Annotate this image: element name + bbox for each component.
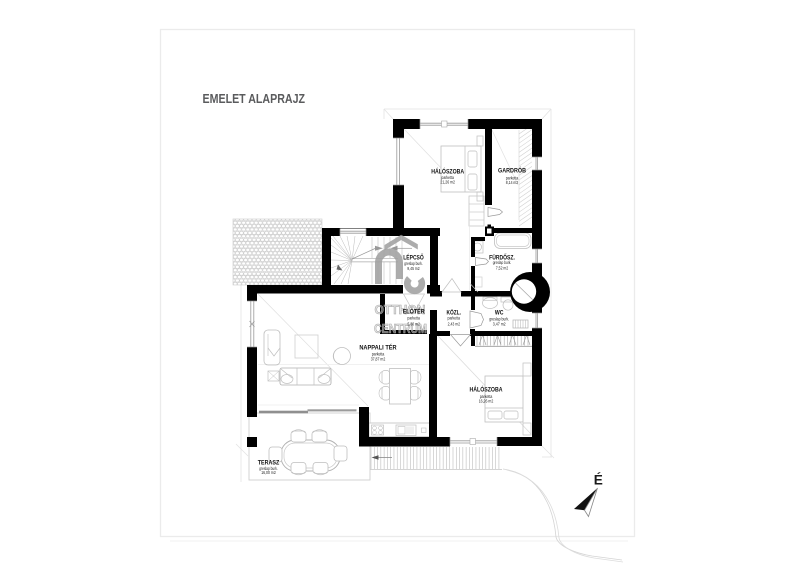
svg-text:EMELET ALAPRAJZ: EMELET ALAPRAJZ (203, 92, 306, 106)
svg-text:9,45 m2: 9,45 m2 (407, 266, 420, 271)
svg-text:GARDRÓB: GARDRÓB (498, 165, 526, 174)
svg-text:HÁLÓSZOBA: HÁLÓSZOBA (470, 384, 503, 393)
svg-text:7,52 m2: 7,52 m2 (496, 265, 509, 270)
svg-text:parketta: parketta (407, 315, 420, 320)
svg-text:2,43 m2: 2,43 m2 (448, 321, 461, 326)
svg-text:16,00 m2: 16,00 m2 (261, 470, 276, 475)
svg-text:É: É (594, 473, 603, 488)
svg-text:3,47 m2: 3,47 m2 (493, 321, 507, 326)
svg-text:8,14 m2: 8,14 m2 (506, 180, 519, 185)
svg-text:parketta: parketta (448, 316, 461, 321)
svg-text:NAPPALI TÉR: NAPPALI TÉR (359, 342, 396, 351)
svg-text:5,80 m2: 5,80 m2 (408, 321, 421, 326)
svg-text:21,26 m2: 21,26 m2 (440, 179, 455, 184)
svg-text:16,26 m2: 16,26 m2 (479, 399, 494, 404)
svg-text:37,87 m2: 37,87 m2 (371, 357, 386, 362)
